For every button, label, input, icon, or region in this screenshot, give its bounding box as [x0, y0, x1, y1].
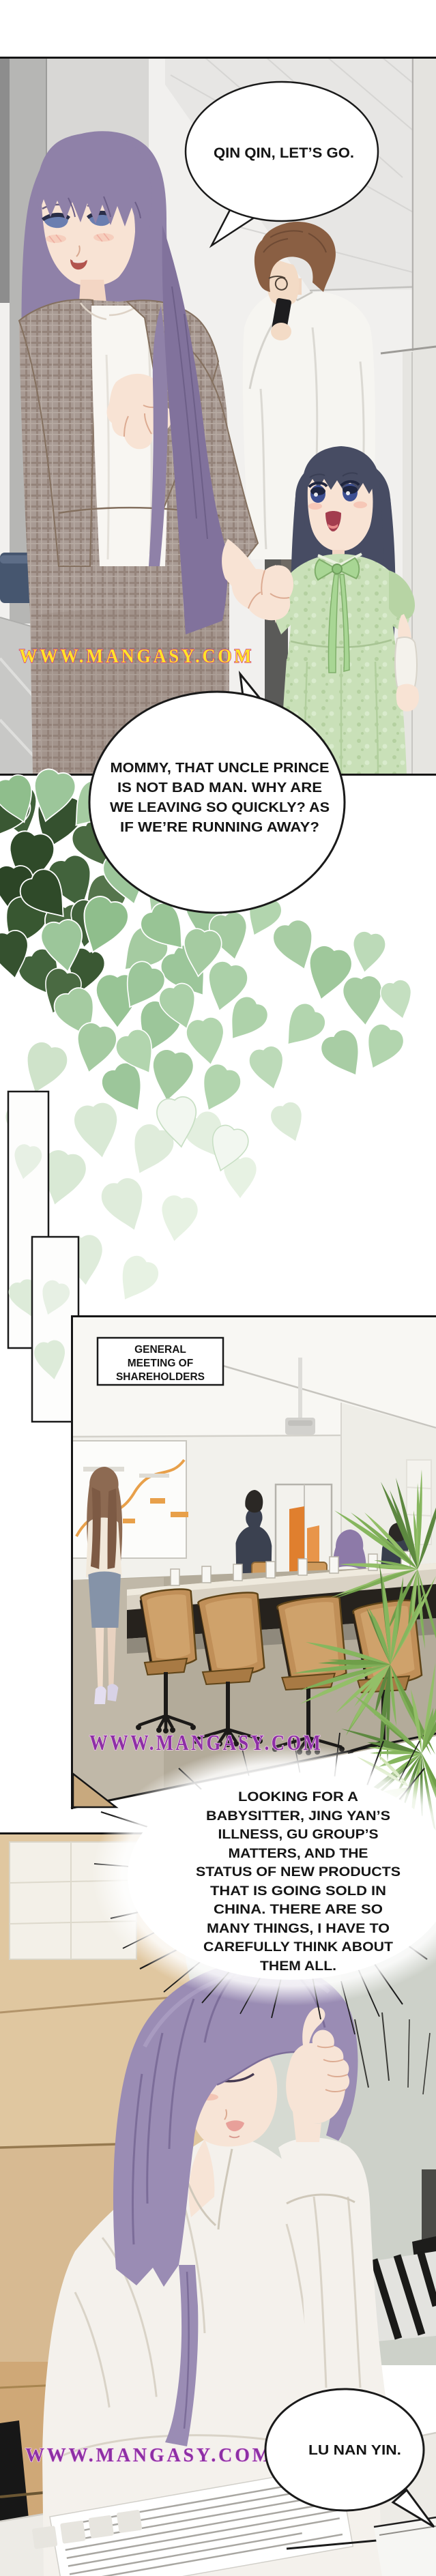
svg-text:IF WE’RE RUNNING AWAY?: IF WE’RE RUNNING AWAY? [120, 819, 319, 835]
svg-text:WWW.MANGASY.COM: WWW.MANGASY.COM [19, 645, 254, 667]
svg-text:IS NOT BAD MAN. WHY ARE: IS NOT BAD MAN. WHY ARE [117, 780, 322, 795]
svg-text:LOOKING FOR A: LOOKING FOR A [238, 1789, 358, 1804]
svg-text:WE LEAVING SO QUICKLY? AS: WE LEAVING SO QUICKLY? AS [110, 800, 330, 815]
svg-text:CAREFULLY THINK ABOUT: CAREFULLY THINK ABOUT [203, 1940, 393, 1955]
svg-text:THAT IS GOING SOLD IN: THAT IS GOING SOLD IN [210, 1884, 386, 1899]
svg-text:STATUS OF NEW PRODUCTS: STATUS OF NEW PRODUCTS [196, 1864, 401, 1879]
svg-text:ILLNESS, GU GROUP’S: ILLNESS, GU GROUP’S [218, 1827, 379, 1842]
svg-text:MATTERS, AND THE: MATTERS, AND THE [229, 1846, 368, 1861]
svg-text:SHAREHOLDERS: SHAREHOLDERS [116, 1371, 205, 1383]
svg-text:WWW.MANGASY.COM: WWW.MANGASY.COM [25, 2444, 273, 2466]
svg-text:MEETING OF: MEETING OF [128, 1358, 193, 1369]
svg-text:LU NAN YIN.: LU NAN YIN. [308, 2443, 401, 2458]
svg-text:GENERAL: GENERAL [134, 1344, 186, 1356]
svg-text:CHINA. THERE ARE SO: CHINA. THERE ARE SO [214, 1902, 383, 1917]
svg-text:MOMMY, THAT UNCLE PRINCE: MOMMY, THAT UNCLE PRINCE [111, 760, 330, 776]
svg-text:QIN QIN, LET’S GO.: QIN QIN, LET’S GO. [214, 145, 354, 161]
svg-text:WWW.MANGASY.COM: WWW.MANGASY.COM [89, 1730, 323, 1755]
svg-text:BABYSITTER, JING YAN’S: BABYSITTER, JING YAN’S [206, 1809, 390, 1824]
svg-text:THEM ALL.: THEM ALL. [260, 1959, 336, 1974]
svg-text:MANY THINGS, I HAVE TO: MANY THINGS, I HAVE TO [207, 1921, 390, 1936]
